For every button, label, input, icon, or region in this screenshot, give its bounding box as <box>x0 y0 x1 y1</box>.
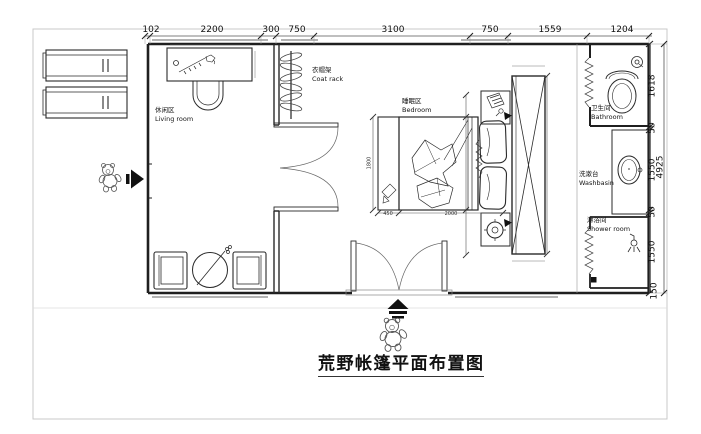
desk <box>167 45 255 81</box>
sunbed-bottom <box>43 87 127 118</box>
coat-rack-en: Coat rack <box>312 75 343 84</box>
coat-rack <box>280 51 303 119</box>
room-label-coat-rack: 衣帽架 Coat rack <box>312 66 343 83</box>
toilet-paper-icon <box>632 57 644 68</box>
floor-plan-sheet: 102 2200 300 750 3100 750 1559 1204 1618… <box>0 0 701 434</box>
bedroom-en: Bedroom <box>402 106 431 115</box>
dim-top-2200: 2200 <box>194 25 230 35</box>
dim-right-150: 150 <box>651 282 660 299</box>
dim-right-50a: 50 <box>649 122 658 133</box>
round-table <box>193 246 232 288</box>
entrance-arrow-right-icon <box>126 170 144 189</box>
dim-top-750b: 750 <box>472 25 508 35</box>
bathroom-en: Bathroom <box>591 113 623 122</box>
bear-figure-left <box>98 164 122 193</box>
bed-dimensions <box>370 73 550 258</box>
bed <box>378 117 507 210</box>
dim-bed-bench: 450 <box>380 212 396 217</box>
washbasin-en: Washbasin <box>579 179 614 188</box>
dim-top-1204: 1204 <box>604 25 640 35</box>
dim-bed-length: 2000 <box>441 212 461 217</box>
nightstand-bottom <box>481 213 510 246</box>
washbasin-zh: 洗漱台 <box>579 170 614 179</box>
dim-bed-width: 1800 <box>368 157 373 170</box>
living-room-zh: 休闲区 <box>155 106 193 115</box>
shower-room-en: Shower room <box>587 225 630 234</box>
interior-double-door <box>274 123 338 211</box>
shower-head-icon <box>628 234 640 252</box>
floor-drain-icon <box>591 277 597 283</box>
dim-top-1559: 1559 <box>532 25 568 35</box>
bedroom-zh: 睡眠区 <box>402 97 431 106</box>
shower-room-zh: 淋浴间 <box>587 216 630 225</box>
dim-top-750a: 750 <box>279 25 315 35</box>
room-label-washbasin: 洗漱台 Washbasin <box>579 170 614 187</box>
dim-right-total-4925: 4925 <box>657 156 666 179</box>
drawing-title: 荒野帐篷平面布置图 <box>318 349 484 377</box>
room-label-bathroom: 卫生间 Bathroom <box>591 104 623 121</box>
wardrobe <box>512 66 545 261</box>
desk-chair <box>193 81 223 110</box>
bathroom-zh: 卫生间 <box>591 104 623 113</box>
entrance-arrow-up-icon <box>388 299 409 319</box>
coat-rack-zh: 衣帽架 <box>312 66 343 75</box>
dim-right-1618: 1618 <box>649 75 658 98</box>
dim-top-102: 102 <box>133 25 169 35</box>
dim-top-3100: 3100 <box>375 25 411 35</box>
bear-figure-bottom <box>379 318 408 351</box>
dim-right-50b: 50 <box>649 206 658 217</box>
room-label-bedroom: 睡眠区 Bedroom <box>402 97 431 114</box>
living-room-en: Living room <box>155 115 193 124</box>
partition-wall <box>274 44 279 293</box>
room-label-shower-room: 淋浴间 Shower room <box>587 216 630 233</box>
window-segments <box>152 40 558 297</box>
room-label-living-room: 休闲区 Living room <box>155 106 193 123</box>
armchair-right <box>233 252 266 289</box>
squiggle-door-symbols <box>476 58 593 274</box>
entry-double-door <box>346 241 452 295</box>
armchair-left <box>154 252 187 289</box>
washbasin-counter <box>612 130 648 214</box>
dim-right-1550b: 1550 <box>649 241 658 264</box>
sunbed-top <box>43 50 127 81</box>
